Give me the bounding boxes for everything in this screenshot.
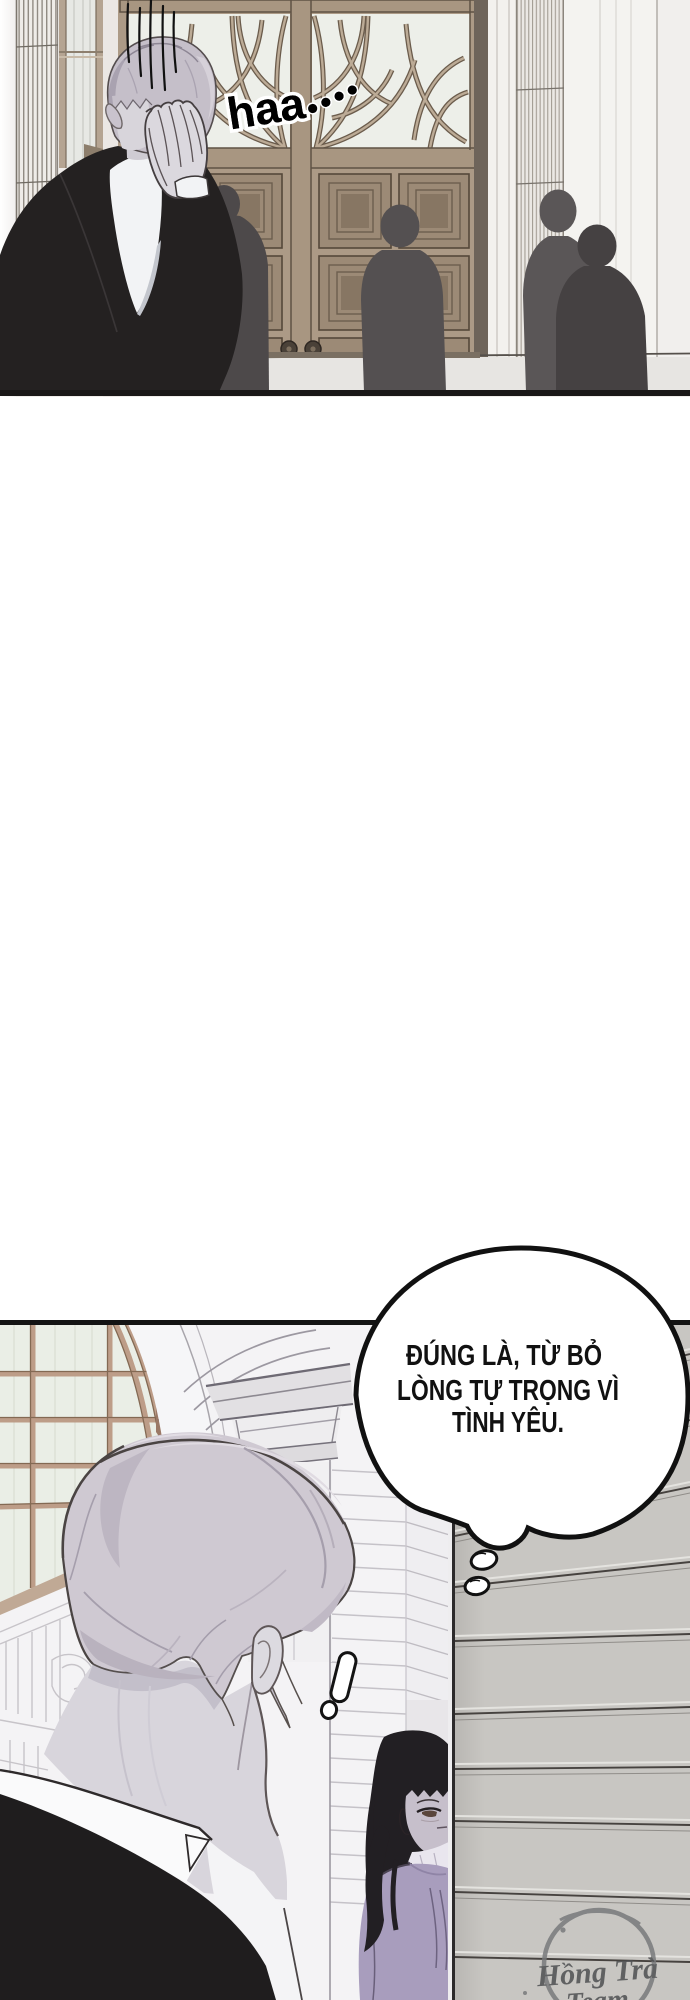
svg-text:TÌNH YÊU.: TÌNH YÊU. — [452, 1405, 564, 1439]
svg-text:LÒNG TỰ TRỌNG VÌ: LÒNG TỰ TRỌNG VÌ — [397, 1373, 619, 1407]
svg-text:ĐÚNG LÀ, TỪ BỎ: ĐÚNG LÀ, TỪ BỎ — [406, 1338, 602, 1372]
